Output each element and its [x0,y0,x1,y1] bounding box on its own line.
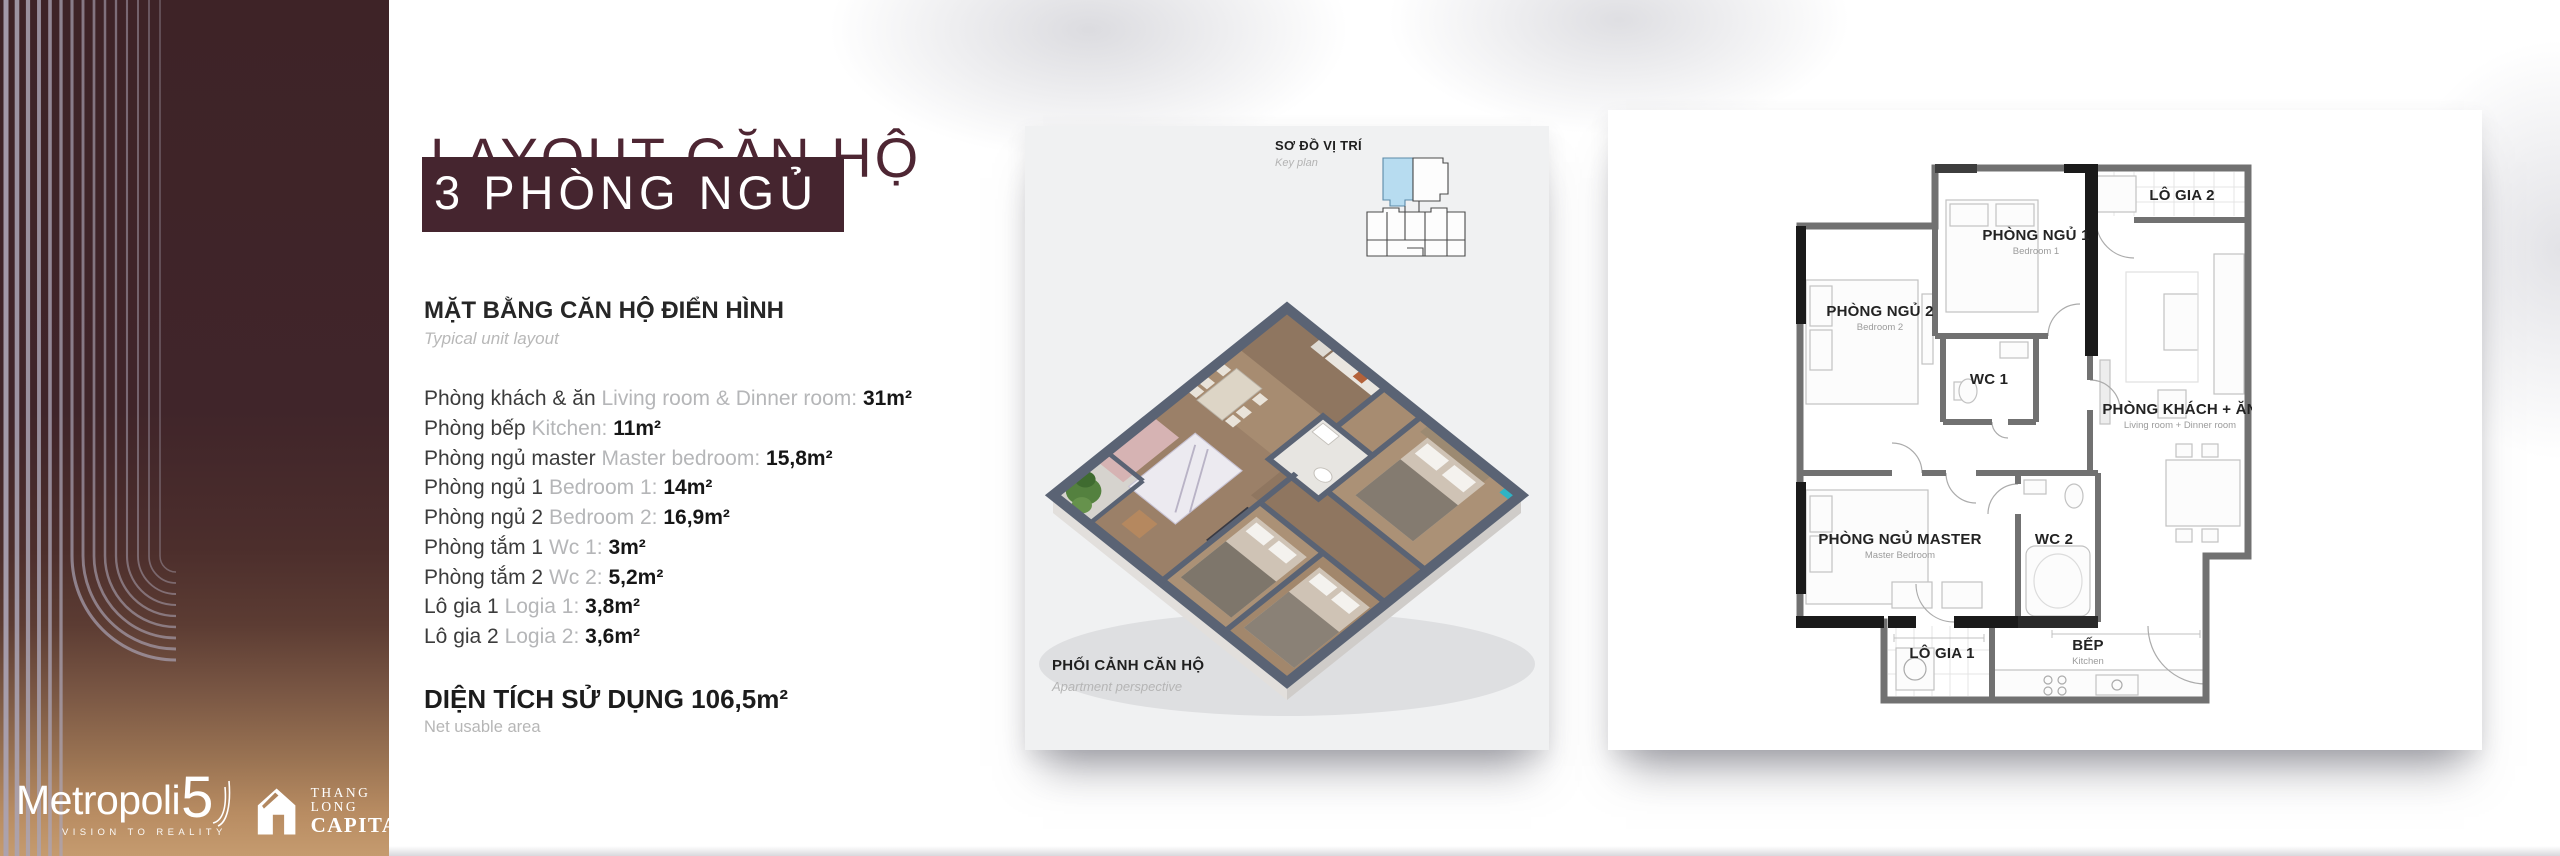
wc2-toilet [2065,484,2083,508]
metropoli-logo-text: Metropoli [16,780,180,821]
room-name-en: Living room & Dinner room: [601,387,857,410]
room-label-logia2: LÔ GIA 2 [2149,186,2214,204]
room-name-en: Bedroom 1: [549,476,658,499]
page-subtitle-banner: 3 PHÒNG NGỦ [422,157,844,232]
wc2-sink [2024,480,2046,494]
room-sublabel-kitchen: Kitchen [2072,656,2104,667]
floorplan-drawing: LÔ GIA 2 PHÒNG NGỦ 1 Bedroom 1 PHÒNG NGỦ… [1796,164,2252,734]
sidebar-panel: Metropoli5 VISION TO REALITY THANG LONG … [0,0,389,856]
room-label-kitchen: BẾP [2072,637,2103,654]
house-icon [255,784,298,838]
room-name-en: Master bedroom: [601,447,760,470]
room-area-value: 15,8m² [766,447,833,470]
room-area-value: 3m² [608,536,645,559]
room-label-wc2: WC 2 [2035,531,2073,548]
room-area-value: 5,2m² [608,566,663,589]
room-row: Phòng ngủ 1 Bedroom 1: 14m² [424,473,912,503]
room-name-vi: Phòng ngủ 2 [424,506,543,529]
room-row: Phòng bếp Kitchen: 11m² [424,414,912,444]
metropoli-logo-number: 5 [181,769,213,827]
wc2-bathtub [2026,546,2090,616]
brand-tagline: VISION TO REALITY [62,827,231,838]
room-row: Phòng tắm 2 Wc 2: 5,2m² [424,563,912,593]
keyplan-subtitle: Key plan [1275,157,1318,169]
room-row: Phòng ngủ 2 Bedroom 2: 16,9m² [424,503,912,533]
perspective-caption: PHỐI CẢNH CĂN HỘ [1052,657,1204,674]
wc1-sink [2000,342,2028,358]
total-area-label: DIỆN TÍCH SỬ DỤNG [424,684,684,714]
brand-logos: Metropoli5 VISION TO REALITY THANG LONG … [16,763,381,840]
room-label-logia1: LÔ GIA 1 [1909,644,1974,662]
apartment-3d-render [1025,244,1549,722]
room-label-wc1: WC 1 [1970,371,2008,388]
perspective-card: SƠ ĐỒ VỊ TRÍ Key plan [1025,126,1549,750]
sofa [2214,254,2244,394]
dimension-lines [1894,630,2200,642]
room-name-vi: Phòng tắm 2 [424,566,543,589]
metropoli-logo: Metropoli5 VISION TO REALITY [16,763,231,840]
dining-table [2166,460,2240,526]
room-label-living: PHÒNG KHÁCH + ĂN [2102,400,2252,418]
main-area: LAYOUT CĂN HỘ 3 PHÒNG NGỦ MẶT BẰNG CĂN H… [389,0,2560,856]
floorplan-card: LÔ GIA 2 PHÒNG NGỦ 1 Bedroom 1 PHÒNG NGỦ… [1608,110,2482,750]
room-name-vi: Phòng ngủ 1 [424,476,543,499]
room-name-en: Logia 1: [505,595,580,618]
room-row: Lô gia 1 Logia 1: 3,8m² [424,592,912,622]
perspective-caption-en: Apartment perspective [1052,679,1182,694]
logo-flourish-icon [211,773,231,829]
room-name-en: Kitchen: [531,417,607,440]
room-area-value: 3,6m² [585,625,640,648]
room-sublabel-living: Living room + Dinner room [2124,420,2236,431]
total-area-en: Net usable area [424,718,541,737]
room-name-en: Wc 1: [549,536,603,559]
total-area-line: DIỆN TÍCH SỬ DỤNG 106,5m² [424,684,788,715]
room-area-value: 16,9m² [663,506,730,529]
room-label-bedroom2: PHÒNG NGỦ 2 [1826,302,1933,320]
room-name-vi: Phòng tắm 1 [424,536,543,559]
room-name-vi: Phòng bếp [424,417,526,440]
room-area-value: 3,8m² [585,595,640,618]
total-area-value: 106,5m² [691,684,788,714]
room-sublabel-master: Master Bedroom [1865,550,1935,561]
room-name-vi: Phòng ngủ master [424,447,596,470]
bottom-shadow-band [389,846,2560,856]
room-name-en: Bedroom 2: [549,506,658,529]
room-name-en: Wc 2: [549,566,603,589]
room-name-vi: Lô gia 1 [424,595,499,618]
logia2-counter [2096,176,2136,212]
room-row: Phòng tắm 1 Wc 1: 3m² [424,533,912,563]
room-row: Phòng khách & ăn Living room & Dinner ro… [424,384,912,414]
stripe-pattern [0,0,389,856]
keyplan-unit-highlight [1383,158,1413,206]
room-area-value: 31m² [863,387,912,410]
room-row: Lô gia 2 Logia 2: 3,6m² [424,622,912,652]
room-area-value: 11m² [613,417,661,440]
room-name-vi: Phòng khách & ăn [424,387,596,410]
room-name-en: Logia 2: [505,625,580,648]
room-area-value: 14m² [663,476,712,499]
room-sublabel-bedroom2: Bedroom 2 [1857,322,1903,333]
room-label-bedroom1: PHÒNG NGỦ 1 [1982,226,2089,244]
room-label-master: PHÒNG NGỦ MASTER [1818,530,1981,548]
keyplan-title: SƠ ĐỒ VỊ TRÍ [1275,138,1362,153]
room-area-list: Phòng khách & ăn Living room & Dinner ro… [424,384,912,652]
room-name-vi: Lô gia 2 [424,625,499,648]
room-row: Phòng ngủ master Master bedroom: 15,8m² [424,444,912,474]
room-sublabel-bedroom1: Bedroom 1 [2013,246,2059,257]
section-heading-en: Typical unit layout [424,329,559,349]
coffee-table [2164,294,2198,350]
section-heading-vi: MẶT BẰNG CĂN HỘ ĐIỂN HÌNH [424,297,784,325]
